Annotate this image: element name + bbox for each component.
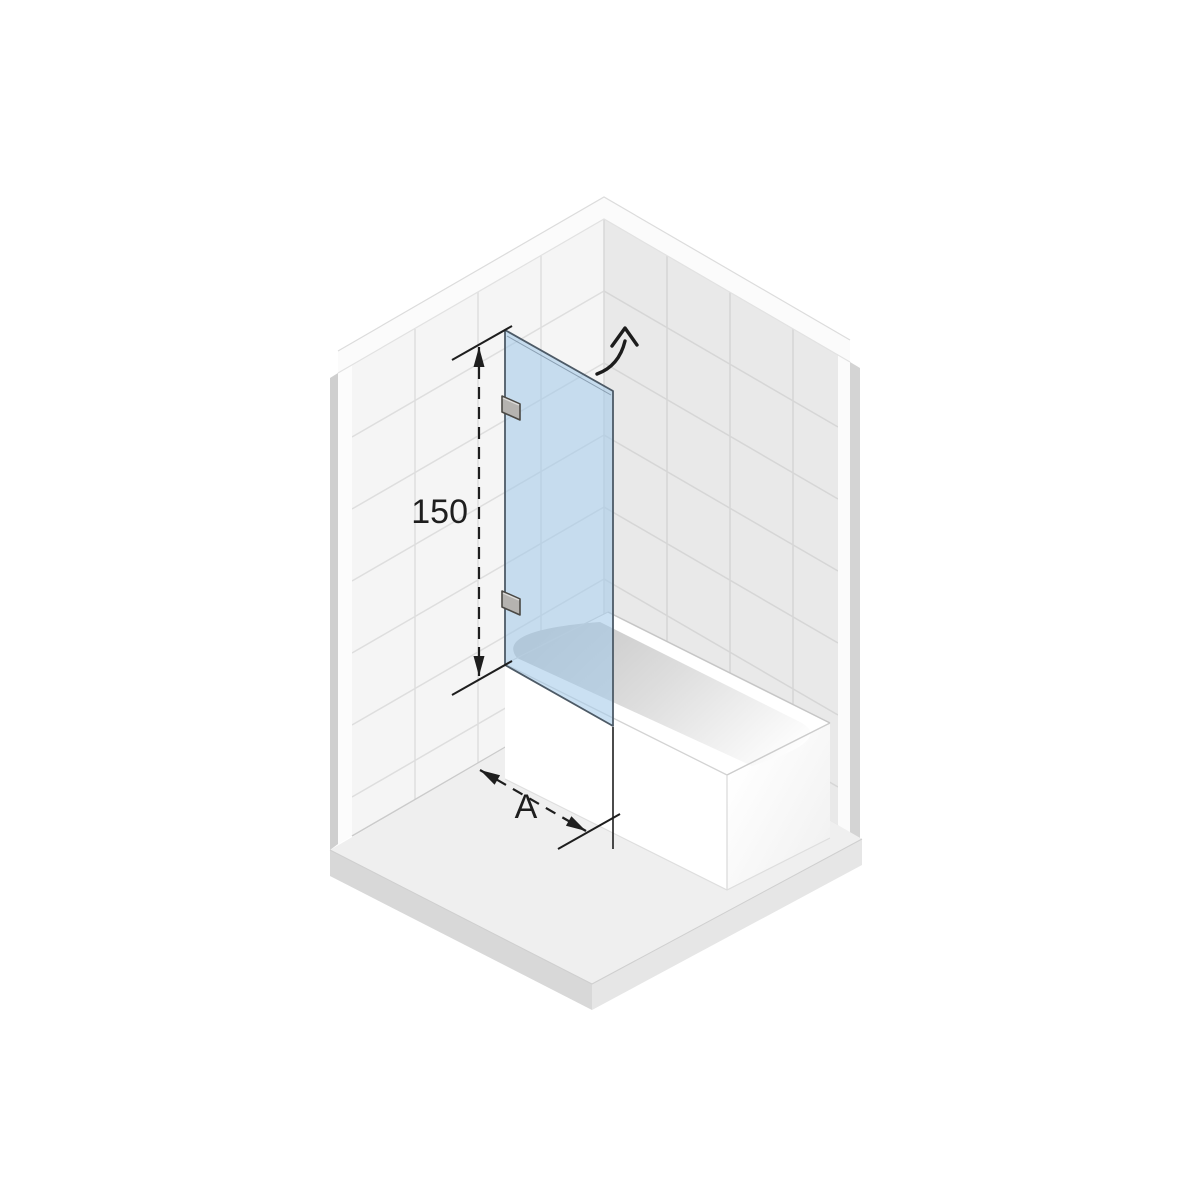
width-dim-label: A [515,788,538,826]
wall-left-edge-strip [338,365,352,844]
wall-right-edge-strip [838,355,850,833]
diagram-stage: 150 A [0,0,1200,1200]
wall-right-side-face [850,362,860,840]
wall-left-side-face [330,373,338,850]
isometric-diagram: 150 A [0,0,1200,1200]
height-dim-label: 150 [411,493,468,531]
glass-panel [505,330,613,726]
glass-pane [505,330,613,726]
